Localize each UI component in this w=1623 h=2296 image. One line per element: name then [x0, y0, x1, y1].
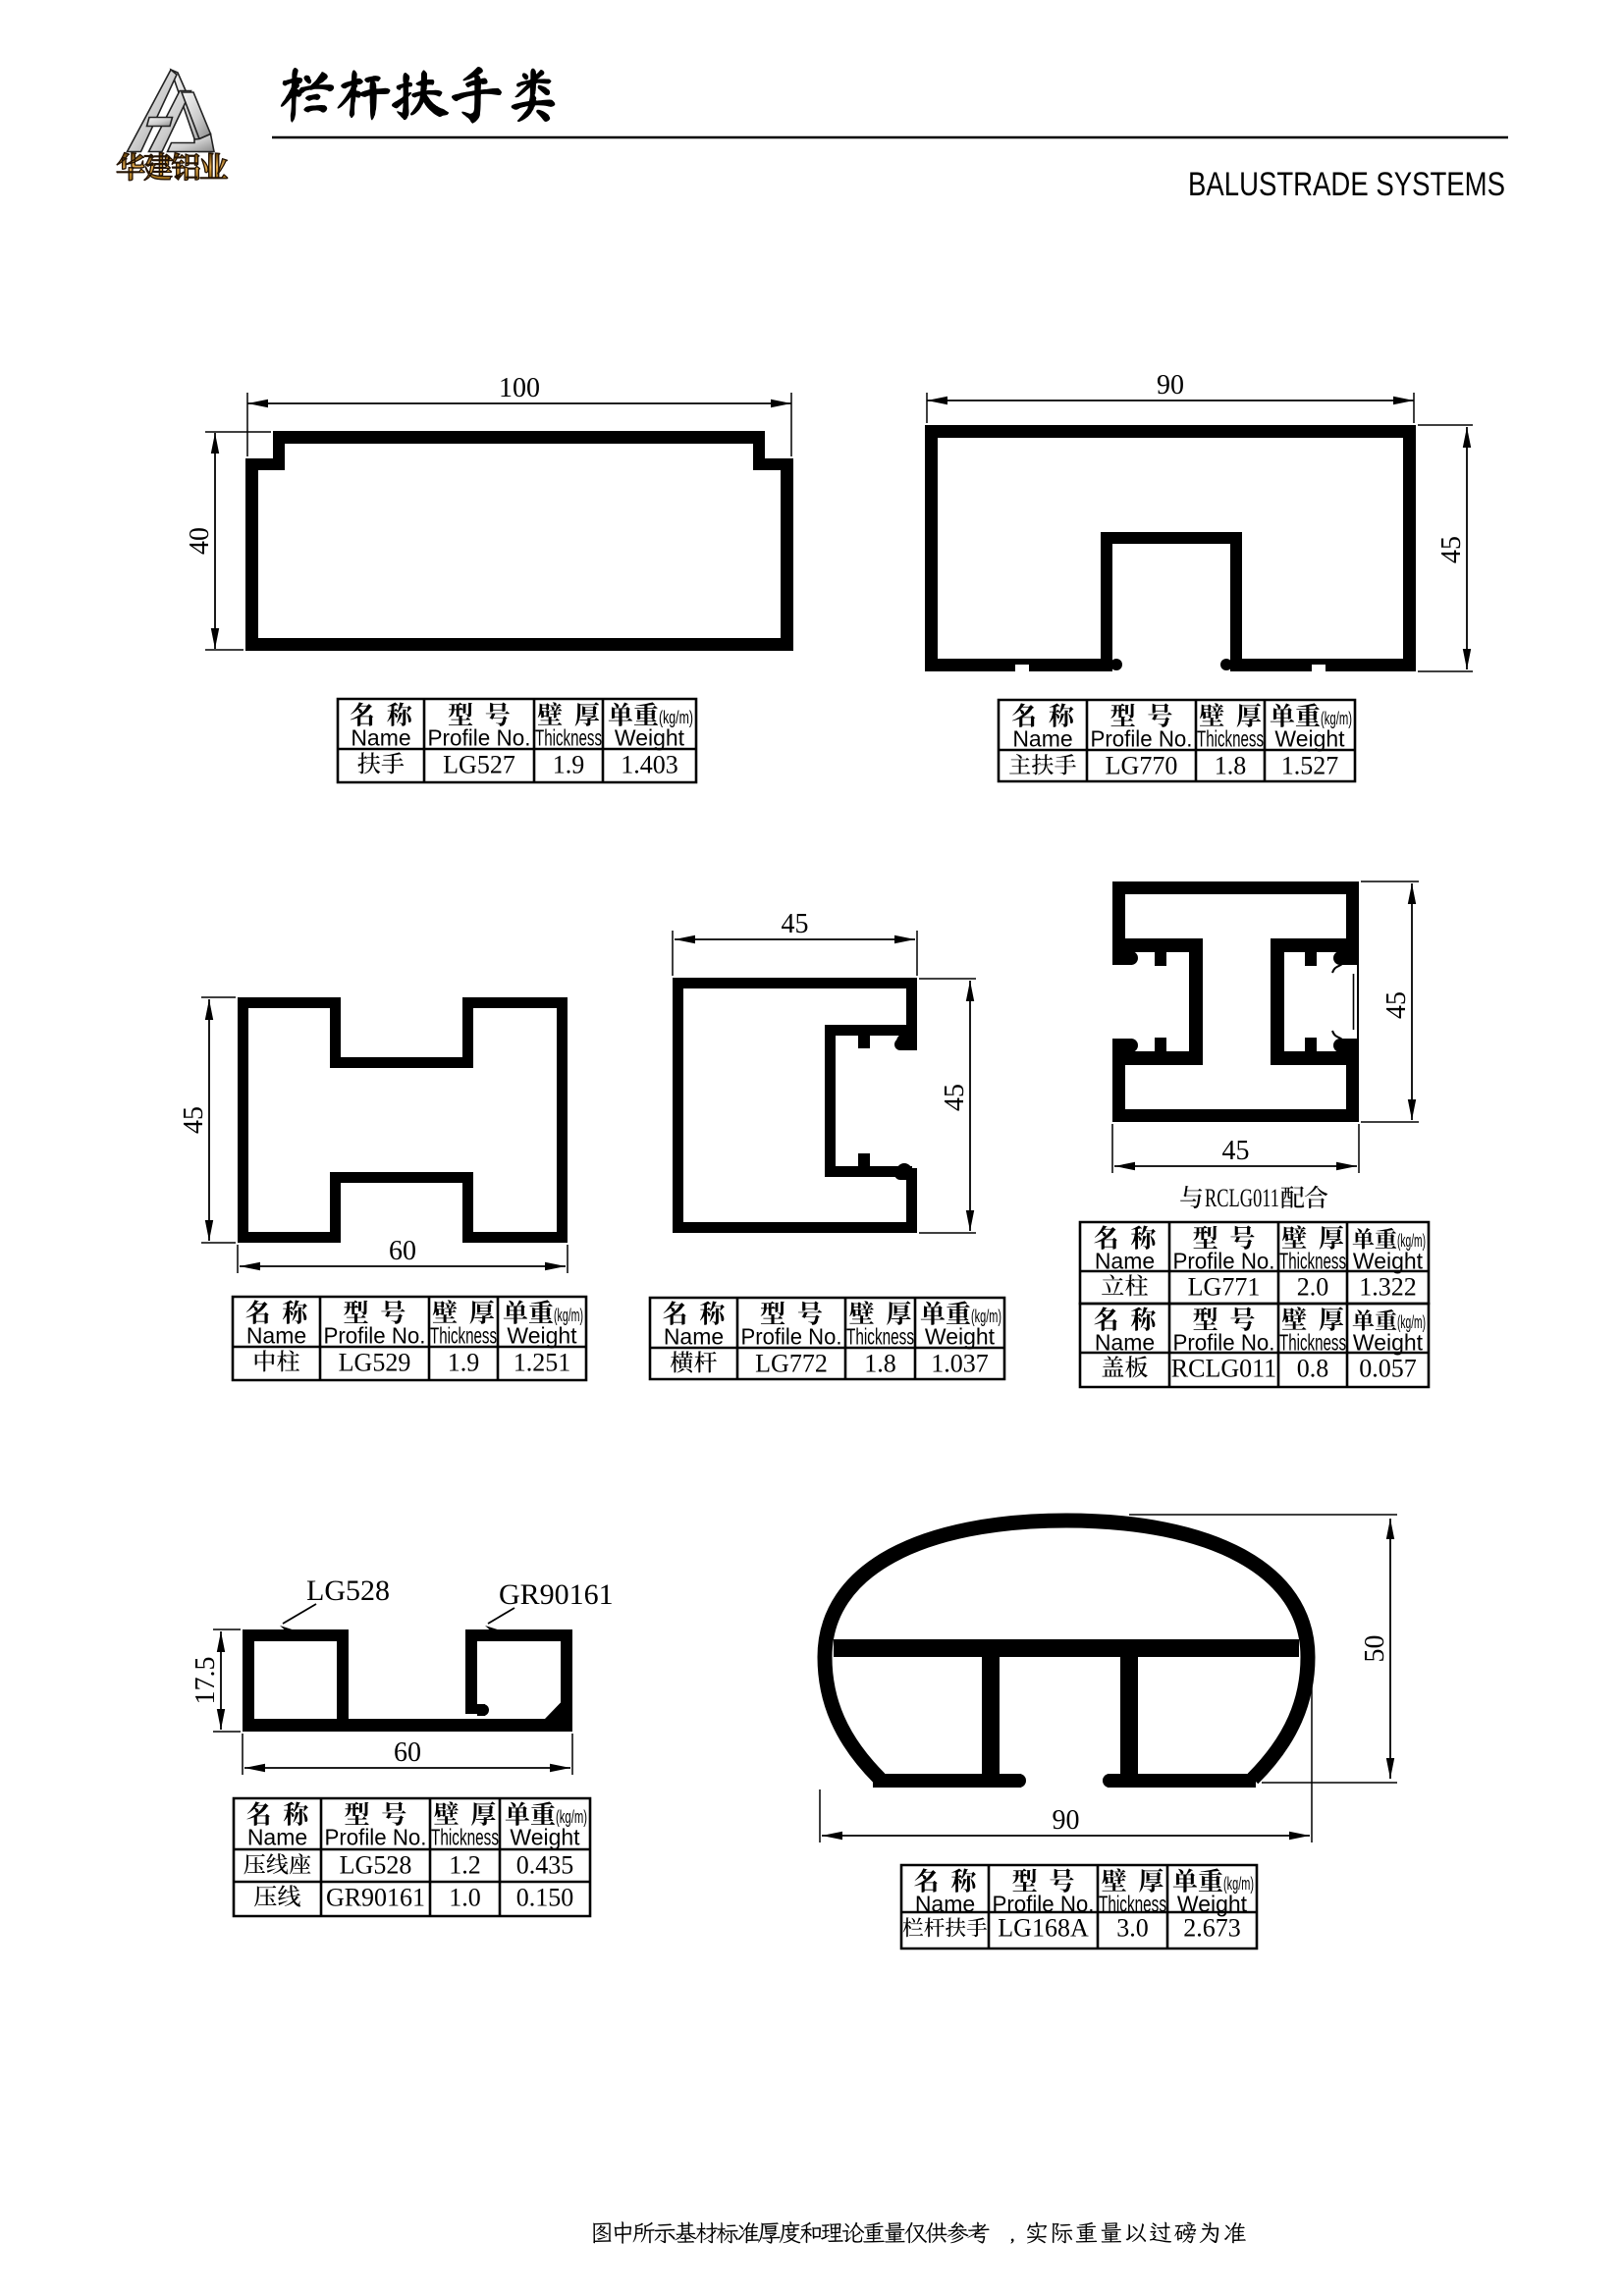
svg-text:RCLG011: RCLG011	[1205, 1184, 1279, 1212]
svg-text:LG168A: LG168A	[998, 1914, 1089, 1943]
svg-text:1.9: 1.9	[553, 751, 585, 779]
svg-text:Name: Name	[1095, 1249, 1155, 1274]
svg-text:0.057: 0.057	[1359, 1355, 1417, 1383]
svg-text:Profile No.: Profile No.	[1173, 1249, 1275, 1274]
svg-text:LG529: LG529	[339, 1349, 411, 1377]
svg-text:60: 60	[394, 1737, 421, 1768]
svg-text:17.5: 17.5	[190, 1657, 221, 1705]
svg-text:Profile No.: Profile No.	[324, 1323, 426, 1349]
svg-text:GR90161: GR90161	[326, 1884, 425, 1912]
svg-text:1.8: 1.8	[1215, 752, 1247, 780]
svg-text:0.435: 0.435	[516, 1851, 574, 1880]
svg-text:Thickness: Thickness	[1197, 726, 1264, 752]
svg-text:1.2: 1.2	[449, 1851, 481, 1880]
svg-text:Thickness: Thickness	[431, 1825, 499, 1850]
svg-text:40: 40	[185, 527, 215, 555]
svg-text:45: 45	[940, 1084, 970, 1111]
svg-text:Name: Name	[246, 1323, 306, 1349]
svg-text:100: 100	[499, 373, 540, 403]
svg-text:90: 90	[1157, 370, 1184, 400]
svg-text:60: 60	[389, 1236, 416, 1266]
svg-text:LG528: LG528	[340, 1851, 412, 1880]
svg-text:Weight: Weight	[507, 1323, 577, 1349]
svg-text:Weight: Weight	[615, 725, 685, 751]
svg-text:Profile No.: Profile No.	[1173, 1330, 1275, 1356]
svg-text:2.673: 2.673	[1183, 1914, 1241, 1943]
svg-text:Thickness: Thickness	[1279, 1249, 1346, 1274]
svg-text:2.0: 2.0	[1297, 1273, 1329, 1302]
svg-text:Name: Name	[351, 725, 410, 751]
svg-text:LG772: LG772	[755, 1350, 828, 1378]
svg-text:0.150: 0.150	[516, 1884, 574, 1912]
svg-text:Weight: Weight	[510, 1825, 580, 1850]
svg-text:45: 45	[179, 1106, 209, 1134]
svg-text:50: 50	[1360, 1635, 1390, 1663]
svg-text:Weight: Weight	[1353, 1330, 1424, 1356]
svg-text:GR90161: GR90161	[499, 1578, 614, 1611]
svg-text:Thickness: Thickness	[430, 1323, 497, 1349]
svg-text:1.403: 1.403	[621, 751, 678, 779]
svg-text:45: 45	[1222, 1136, 1250, 1166]
svg-text:1.037: 1.037	[931, 1350, 989, 1378]
svg-text:45: 45	[1436, 536, 1467, 563]
svg-text:Profile No.: Profile No.	[428, 725, 531, 751]
svg-text:Thickness: Thickness	[1279, 1330, 1346, 1356]
svg-text:Name: Name	[1095, 1330, 1155, 1356]
svg-text:LG771: LG771	[1188, 1273, 1261, 1302]
svg-text:1.9: 1.9	[448, 1349, 480, 1377]
svg-text:Weight: Weight	[1353, 1249, 1424, 1274]
svg-text:1.322: 1.322	[1359, 1273, 1417, 1302]
svg-text:1.527: 1.527	[1281, 752, 1339, 780]
svg-text:RCLG011: RCLG011	[1171, 1355, 1276, 1383]
svg-text:Profile No.: Profile No.	[1091, 726, 1193, 752]
svg-text:Name: Name	[247, 1825, 307, 1850]
svg-text:Profile No.: Profile No.	[325, 1825, 427, 1850]
svg-text:LG527: LG527	[443, 751, 515, 779]
svg-text:Weight: Weight	[1274, 726, 1345, 752]
svg-text:Thickness: Thickness	[846, 1324, 914, 1350]
svg-text:Profile No.: Profile No.	[741, 1324, 842, 1350]
svg-text:0.8: 0.8	[1297, 1355, 1329, 1383]
svg-text:1.8: 1.8	[864, 1350, 896, 1378]
svg-text:Weight: Weight	[925, 1324, 996, 1350]
svg-text:45: 45	[1381, 991, 1412, 1019]
svg-text:1.0: 1.0	[449, 1884, 481, 1912]
svg-text:Thickness: Thickness	[535, 725, 602, 751]
svg-text:LG528: LG528	[306, 1575, 390, 1607]
svg-text:Name: Name	[664, 1324, 724, 1350]
svg-text:3.0: 3.0	[1116, 1914, 1149, 1943]
svg-text:1.251: 1.251	[514, 1349, 571, 1377]
svg-text:Name: Name	[1012, 726, 1072, 752]
svg-text:Name: Name	[915, 1892, 975, 1917]
svg-text:LG770: LG770	[1106, 752, 1178, 780]
svg-text:90: 90	[1053, 1805, 1080, 1836]
svg-text:45: 45	[782, 909, 809, 939]
svg-text:BALUSTRADE SYSTEMS: BALUSTRADE SYSTEMS	[1188, 166, 1505, 203]
